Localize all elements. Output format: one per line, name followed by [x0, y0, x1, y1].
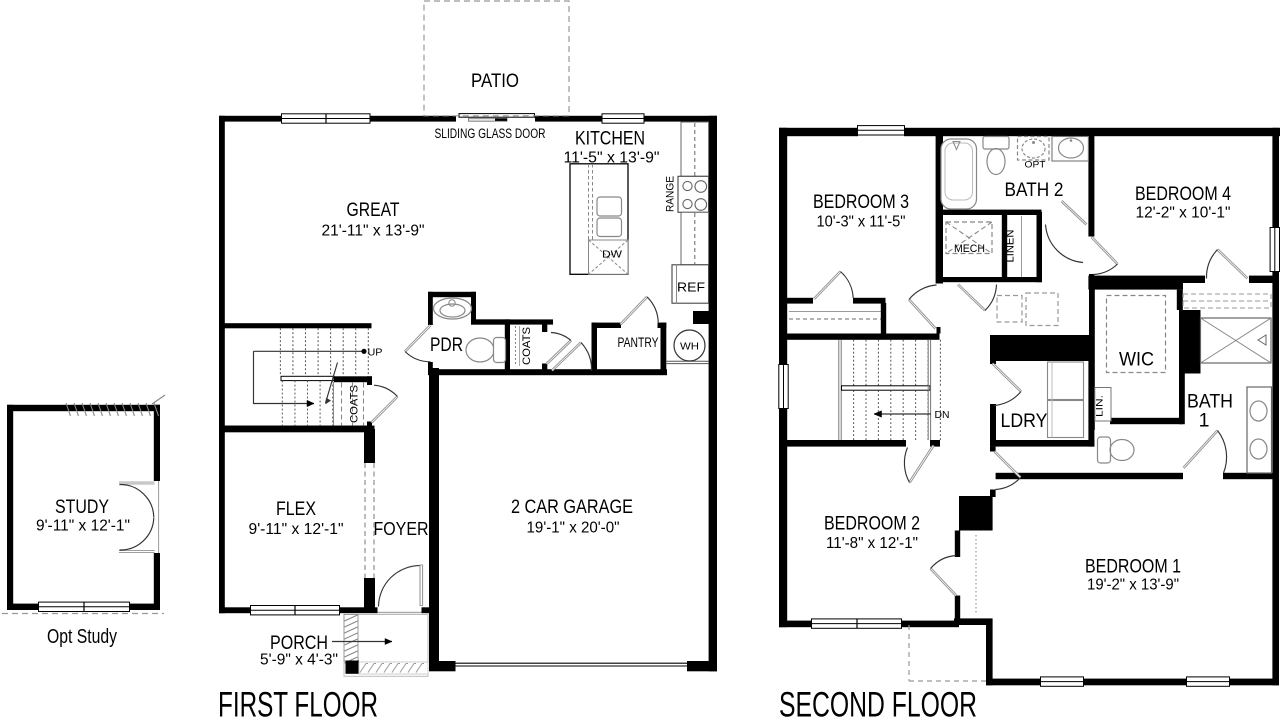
svg-text:LDRY: LDRY [1001, 410, 1048, 432]
svg-text:RANGE: RANGE [665, 176, 677, 212]
svg-text:BATH 2: BATH 2 [1005, 179, 1064, 201]
svg-text:FLEX: FLEX [276, 498, 316, 520]
svg-text:SLIDING GLASS DOOR: SLIDING GLASS DOOR [435, 126, 546, 141]
svg-text:BEDROOM 2: BEDROOM 2 [824, 513, 920, 535]
svg-text:PATIO: PATIO [471, 70, 519, 92]
svg-text:Opt Study: Opt Study [47, 626, 117, 648]
svg-text:KITCHEN: KITCHEN [575, 128, 645, 150]
svg-text:11'-5" x 13'-9": 11'-5" x 13'-9" [564, 150, 660, 167]
svg-text:21'-11" x 13'-9": 21'-11" x 13'-9" [322, 223, 425, 240]
svg-text:SECOND FLOOR: SECOND FLOOR [779, 685, 977, 718]
svg-text:PANTRY: PANTRY [618, 335, 659, 350]
svg-text:2 CAR GARAGE: 2 CAR GARAGE [511, 496, 633, 518]
svg-text:FIRST FLOOR: FIRST FLOOR [218, 685, 378, 718]
svg-text:BEDROOM 3: BEDROOM 3 [813, 191, 909, 213]
svg-text:DN: DN [935, 409, 950, 421]
svg-text:PDR: PDR [430, 334, 463, 356]
svg-text:10'-3" x 11'-5": 10'-3" x 11'-5" [817, 214, 906, 231]
svg-text:11'-8" x 12'-1": 11'-8" x 12'-1" [826, 535, 918, 552]
svg-text:BEDROOM 4: BEDROOM 4 [1135, 183, 1231, 205]
svg-text:9'-11" x 12'-1": 9'-11" x 12'-1" [249, 521, 344, 538]
svg-text:BEDROOM 1: BEDROOM 1 [1085, 556, 1181, 578]
svg-text:COATS: COATS [521, 327, 533, 365]
svg-text:1: 1 [1199, 410, 1210, 432]
svg-text:REF: REF [677, 281, 705, 295]
svg-text:9'-11" x 12'-1": 9'-11" x 12'-1" [36, 518, 130, 535]
svg-text:WH: WH [680, 341, 699, 353]
svg-text:19'-1" x 20'-0": 19'-1" x 20'-0" [527, 520, 620, 537]
svg-text:MECH: MECH [954, 243, 985, 255]
svg-text:FOYER: FOYER [374, 519, 429, 539]
svg-text:DW: DW [602, 249, 622, 261]
svg-text:5'-9" x 4'-3": 5'-9" x 4'-3" [260, 652, 338, 669]
svg-text:STUDY: STUDY [55, 496, 109, 518]
svg-text:GREAT: GREAT [347, 199, 400, 221]
svg-text:LINEN: LINEN [1005, 229, 1017, 262]
svg-text:BATH: BATH [1187, 391, 1233, 413]
svg-text:WIC: WIC [1119, 349, 1154, 371]
svg-text:OPT: OPT [1025, 160, 1046, 171]
svg-text:COATS: COATS [349, 385, 361, 423]
svg-text:19'-2" x 13'-9": 19'-2" x 13'-9" [1087, 577, 1179, 594]
svg-text:UP: UP [368, 347, 383, 359]
svg-text:LIN.: LIN. [1095, 395, 1106, 417]
svg-text:12'-2" x 10'-1": 12'-2" x 10'-1" [1136, 205, 1231, 222]
